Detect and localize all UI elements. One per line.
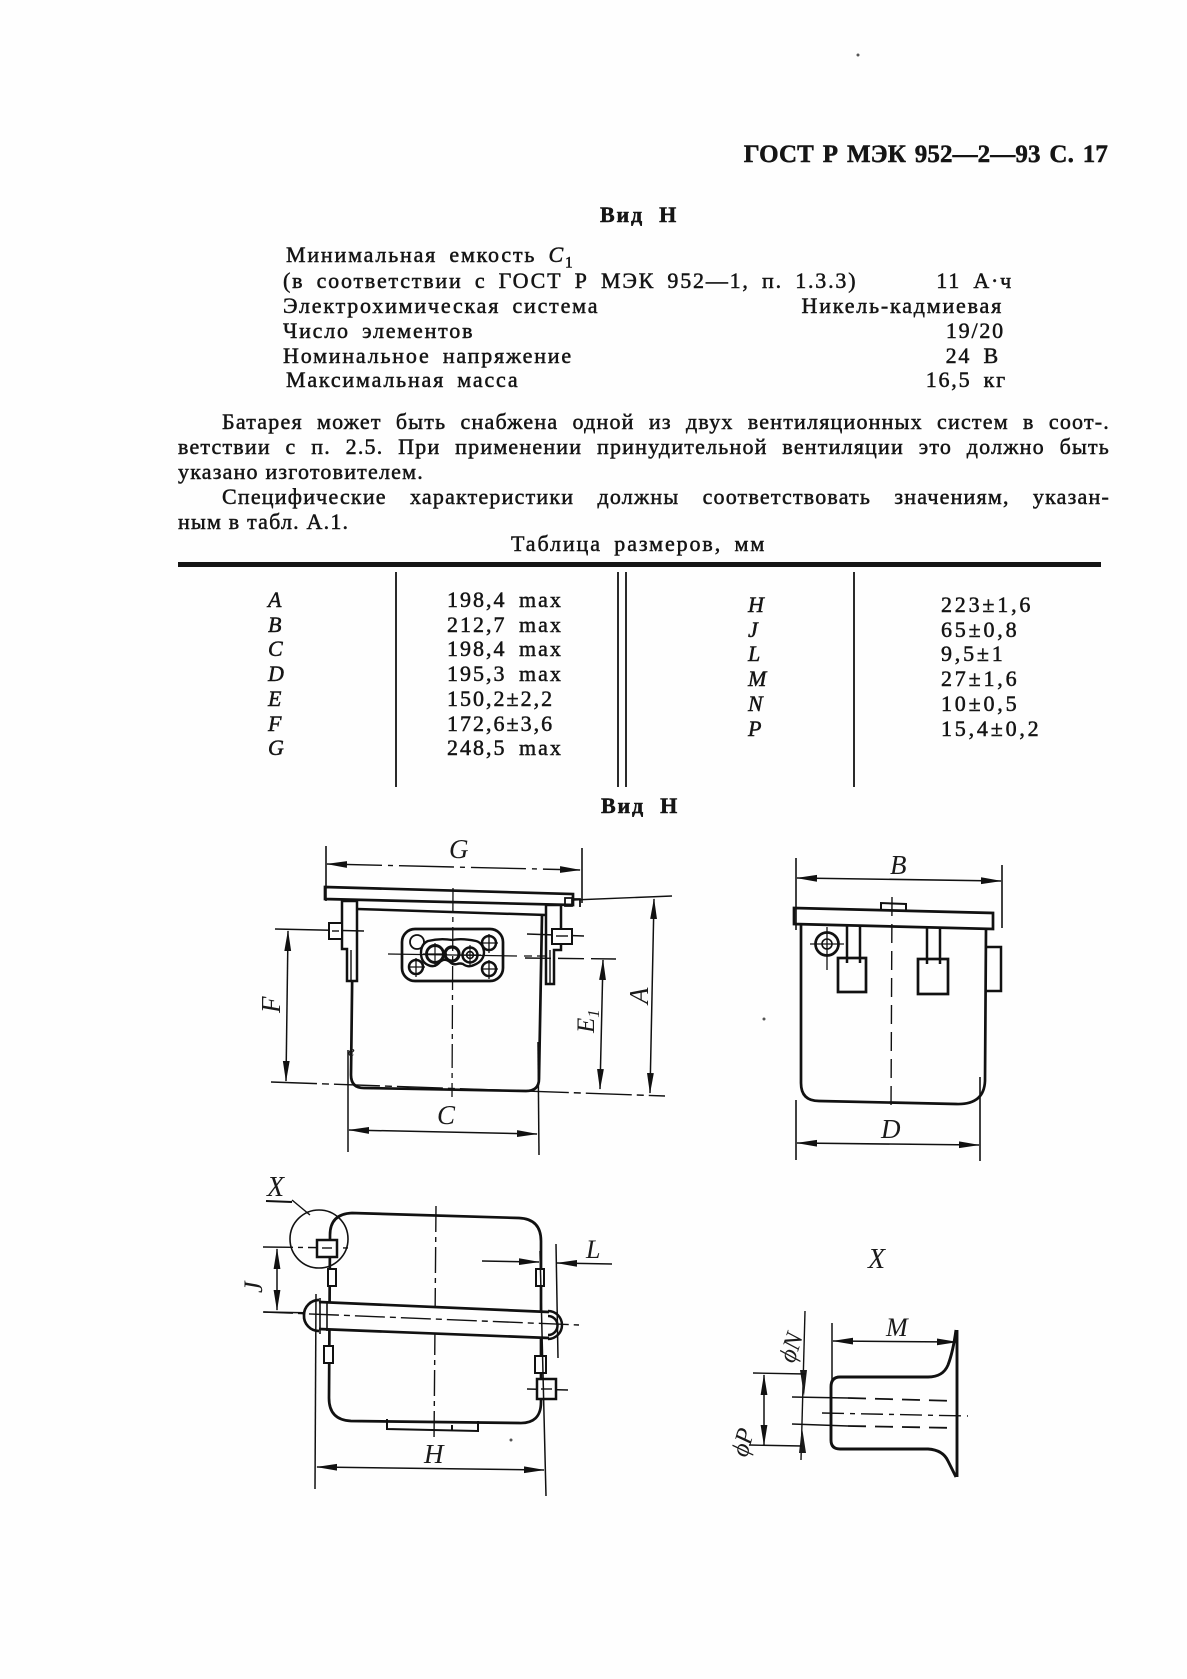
svg-text:E1: E1: [573, 1009, 603, 1034]
svg-text:e: e: [348, 1044, 355, 1060]
svg-text:ϕP: ϕP: [727, 1425, 760, 1459]
svg-text:A: A: [624, 987, 654, 1006]
svg-text:X: X: [266, 1172, 285, 1203]
svg-text:M: M: [885, 1313, 909, 1342]
svg-text:X: X: [867, 1244, 886, 1275]
svg-text:B: B: [890, 850, 907, 880]
svg-text:H: H: [423, 1439, 445, 1469]
svg-text:D: D: [880, 1114, 901, 1144]
svg-text:L: L: [585, 1235, 600, 1264]
svg-text:C: C: [437, 1100, 456, 1130]
svg-text:F: F: [256, 996, 286, 1014]
svg-text:J: J: [239, 1280, 268, 1293]
svg-text:G: G: [449, 834, 469, 864]
